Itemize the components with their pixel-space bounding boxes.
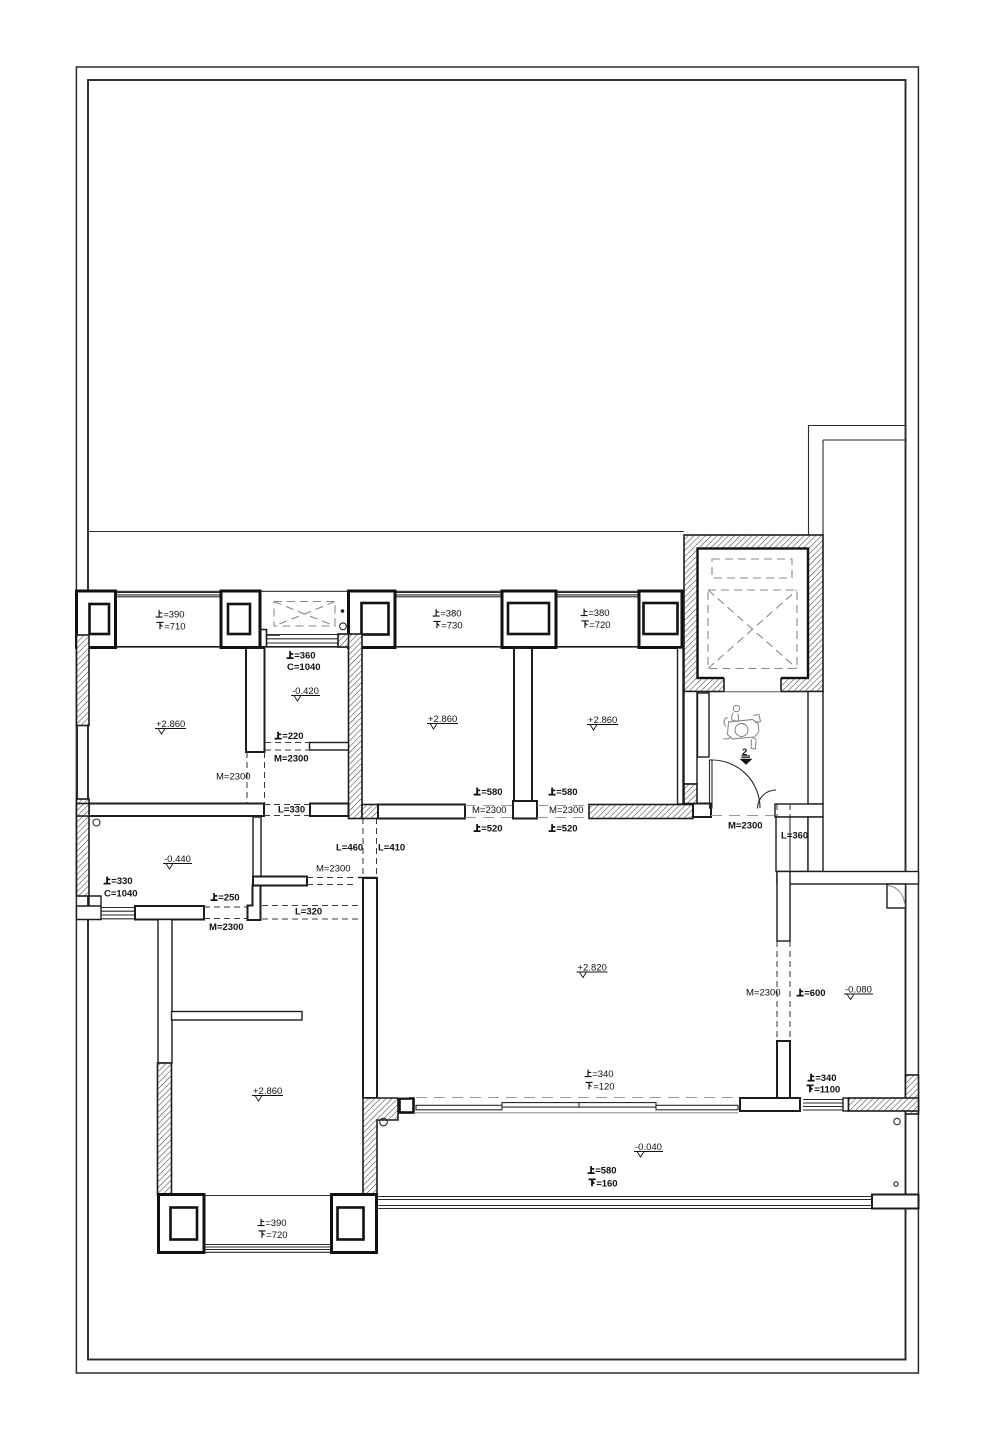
svg-text:L=410: L=410 (378, 843, 405, 854)
svg-text:=730: =730 (441, 621, 462, 632)
svg-text:=220: =220 (282, 731, 303, 742)
svg-text:=520: =520 (556, 824, 577, 835)
svg-text:C=1040: C=1040 (104, 889, 138, 900)
svg-text:M=2300: M=2300 (274, 754, 309, 765)
svg-text:M=2300: M=2300 (728, 821, 763, 832)
svg-text:=160: =160 (596, 1179, 617, 1190)
svg-text:=380: =380 (588, 608, 609, 619)
svg-text:=380: =380 (440, 609, 461, 620)
svg-text:=720: =720 (589, 620, 610, 631)
svg-text:M=2300: M=2300 (216, 772, 251, 783)
svg-text:=710: =710 (164, 622, 185, 633)
svg-text:=340: =340 (815, 1073, 836, 1084)
svg-text:L=330: L=330 (278, 805, 305, 816)
svg-text:M=2300: M=2300 (472, 805, 507, 816)
svg-text:=720: =720 (266, 1230, 287, 1241)
svg-text:M=2300: M=2300 (209, 922, 244, 933)
svg-text:=390: =390 (265, 1218, 286, 1229)
svg-text:L=360: L=360 (781, 831, 808, 842)
svg-text:=1100: =1100 (814, 1085, 840, 1096)
svg-text:=340: =340 (592, 1069, 613, 1080)
svg-text:C=1040: C=1040 (287, 662, 321, 673)
svg-text:L=320: L=320 (295, 907, 322, 918)
svg-text:=520: =520 (481, 824, 502, 835)
svg-text:M=2300: M=2300 (746, 988, 781, 999)
svg-text:=250: =250 (218, 893, 239, 904)
svg-text:=580: =580 (556, 787, 577, 798)
svg-text:=600: =600 (804, 988, 825, 999)
svg-text:L=460: L=460 (336, 843, 363, 854)
svg-text:M=2300: M=2300 (316, 864, 351, 875)
svg-text:=580: =580 (595, 1166, 616, 1177)
svg-text:=120: =120 (593, 1082, 614, 1093)
svg-text:M=2300: M=2300 (549, 805, 584, 816)
svg-text:=390: =390 (163, 610, 184, 621)
svg-text:=580: =580 (481, 787, 502, 798)
svg-text:=360: =360 (294, 651, 315, 662)
svg-text:=330: =330 (111, 876, 132, 887)
